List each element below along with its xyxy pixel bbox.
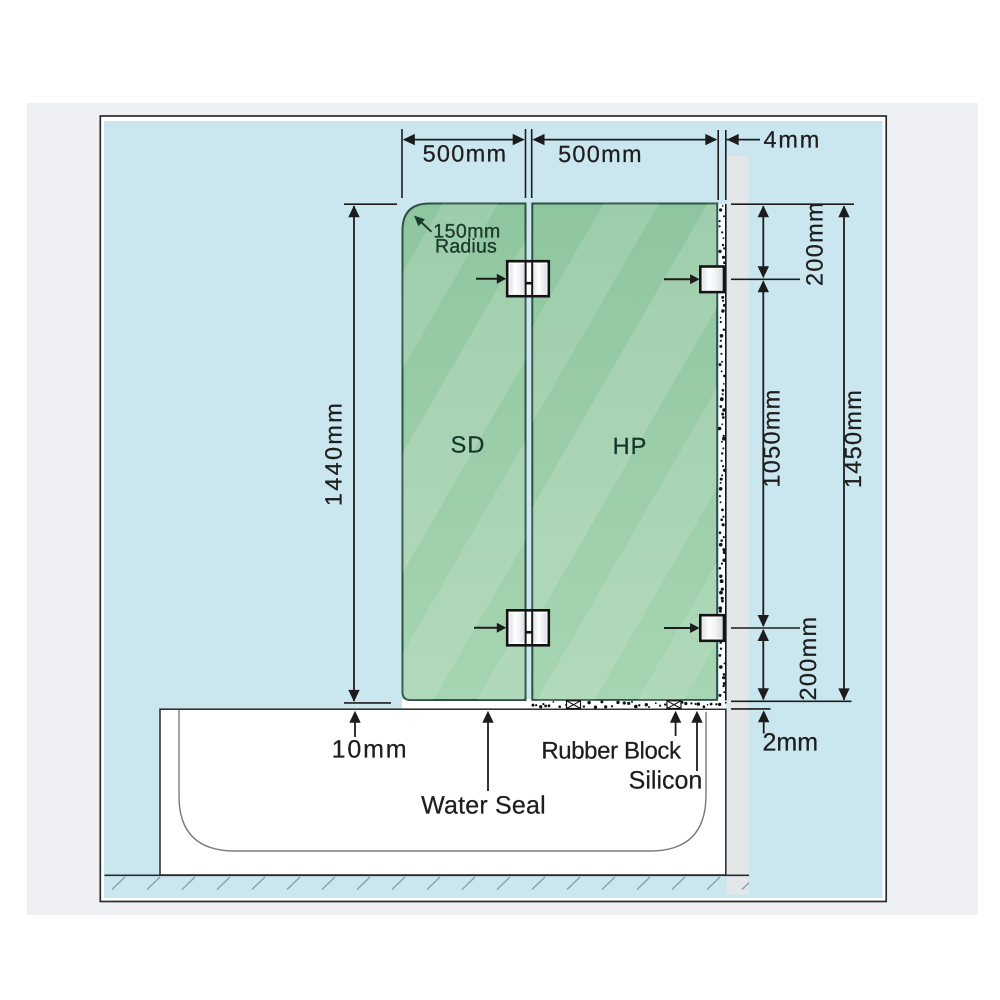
svg-text:4mm: 4mm: [764, 127, 822, 153]
svg-text:500mm: 500mm: [423, 141, 508, 167]
svg-text:200mm: 200mm: [795, 616, 821, 701]
svg-text:HP: HP: [613, 433, 648, 459]
svg-text:500mm: 500mm: [558, 141, 643, 167]
svg-text:Rubber Block: Rubber Block: [541, 738, 682, 765]
svg-text:1440mm: 1440mm: [321, 401, 347, 506]
svg-text:10mm: 10mm: [332, 736, 409, 764]
svg-text:2mm: 2mm: [763, 729, 819, 757]
svg-text:Radius: Radius: [435, 236, 497, 258]
svg-text:1050mm: 1050mm: [759, 388, 785, 487]
svg-text:1450mm: 1450mm: [840, 389, 866, 488]
svg-text:200mm: 200mm: [802, 201, 828, 286]
svg-text:SD: SD: [451, 432, 486, 458]
svg-text:Water Seal: Water Seal: [421, 792, 546, 820]
svg-text:Silicon: Silicon: [629, 767, 703, 795]
